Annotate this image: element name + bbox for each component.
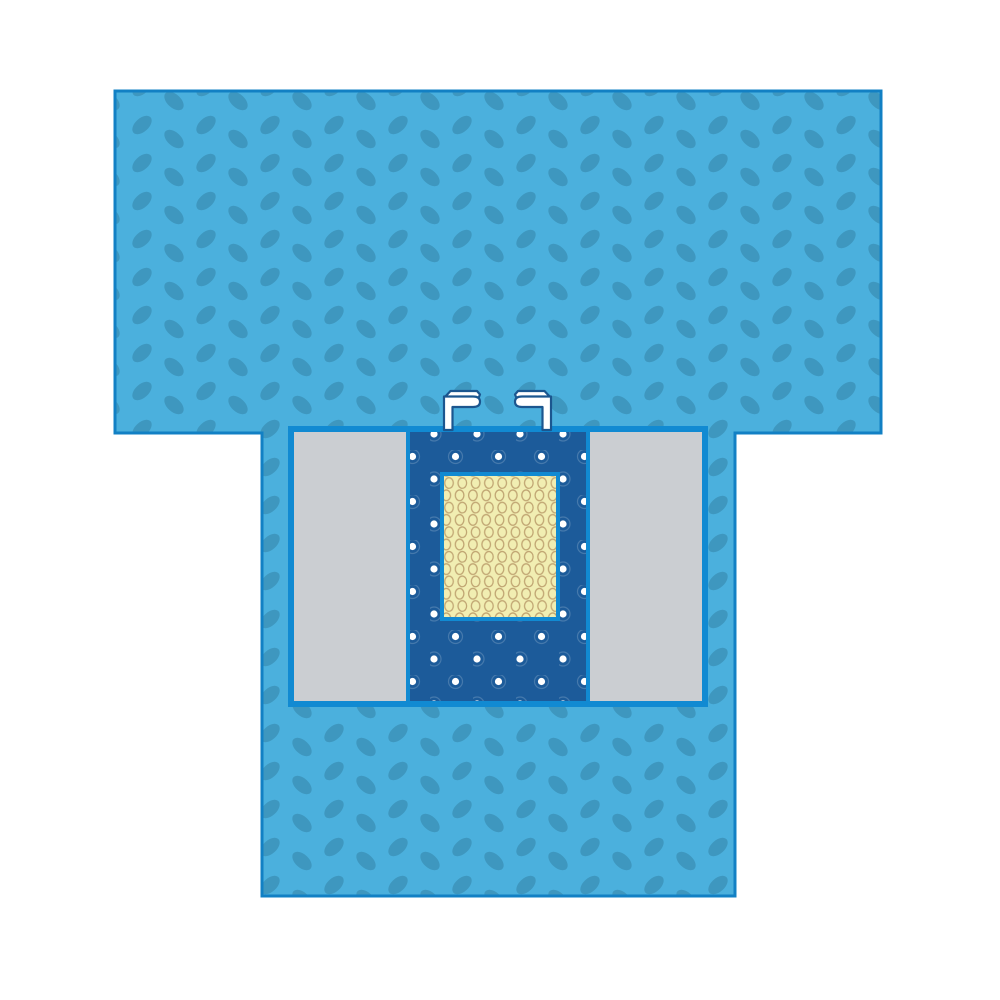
incise-film-window xyxy=(440,472,560,621)
side-panel-right xyxy=(590,432,702,701)
window-film xyxy=(444,476,556,617)
surgical-drape-illustration xyxy=(0,0,1000,1000)
side-panel-left xyxy=(294,432,406,701)
product-image-canvas xyxy=(0,0,1000,1000)
